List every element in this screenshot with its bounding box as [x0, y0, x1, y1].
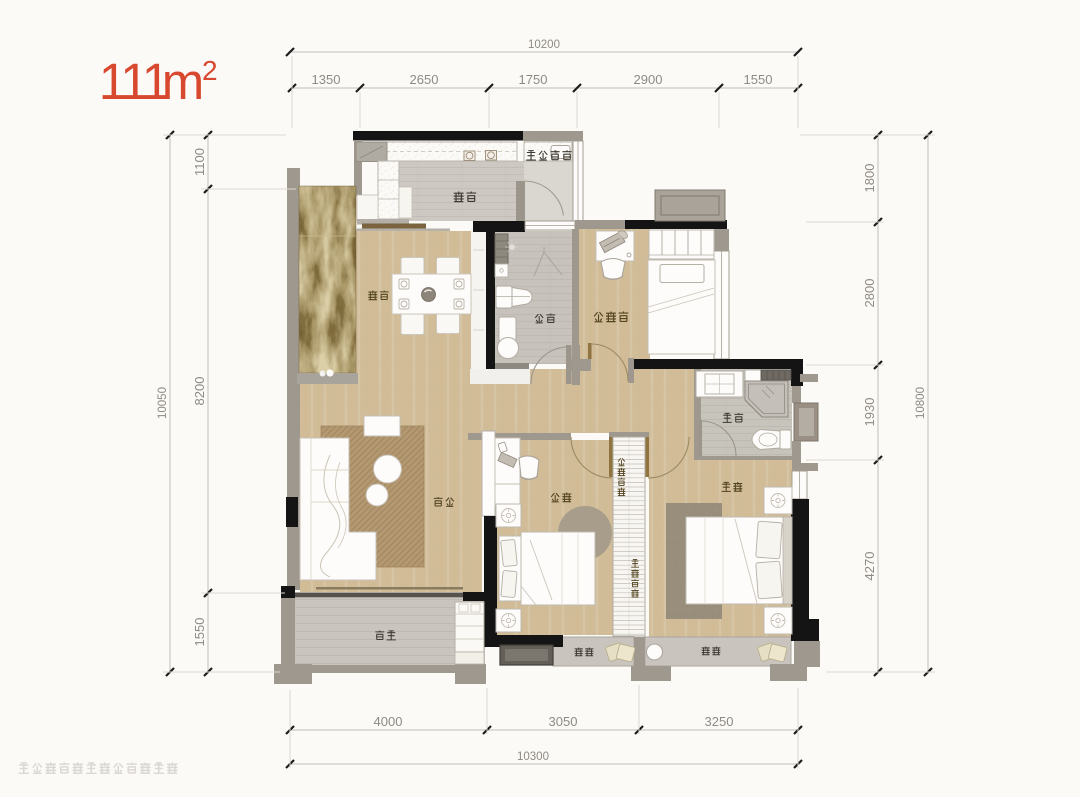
- svg-text:3050: 3050: [549, 714, 578, 729]
- svg-text:111m: 111m: [99, 53, 204, 110]
- svg-text:1930: 1930: [862, 398, 877, 427]
- svg-text:10300: 10300: [517, 751, 549, 763]
- svg-text:2650: 2650: [410, 72, 439, 87]
- svg-text:10050: 10050: [157, 387, 169, 419]
- svg-text:2800: 2800: [862, 279, 877, 308]
- svg-text:1550: 1550: [192, 618, 207, 647]
- svg-text:1750: 1750: [519, 72, 548, 87]
- svg-text:1350: 1350: [312, 72, 341, 87]
- svg-text:4000: 4000: [374, 714, 403, 729]
- svg-text:1550: 1550: [744, 72, 773, 87]
- svg-text:1800: 1800: [862, 164, 877, 193]
- svg-text:1100: 1100: [192, 148, 207, 176]
- svg-text:10800: 10800: [915, 387, 927, 419]
- svg-text:3250: 3250: [705, 714, 734, 729]
- svg-text:8200: 8200: [192, 377, 207, 406]
- svg-text:10200: 10200: [528, 39, 560, 51]
- svg-text:2: 2: [202, 55, 218, 86]
- svg-text:4270: 4270: [862, 552, 877, 581]
- svg-text:2900: 2900: [634, 72, 663, 87]
